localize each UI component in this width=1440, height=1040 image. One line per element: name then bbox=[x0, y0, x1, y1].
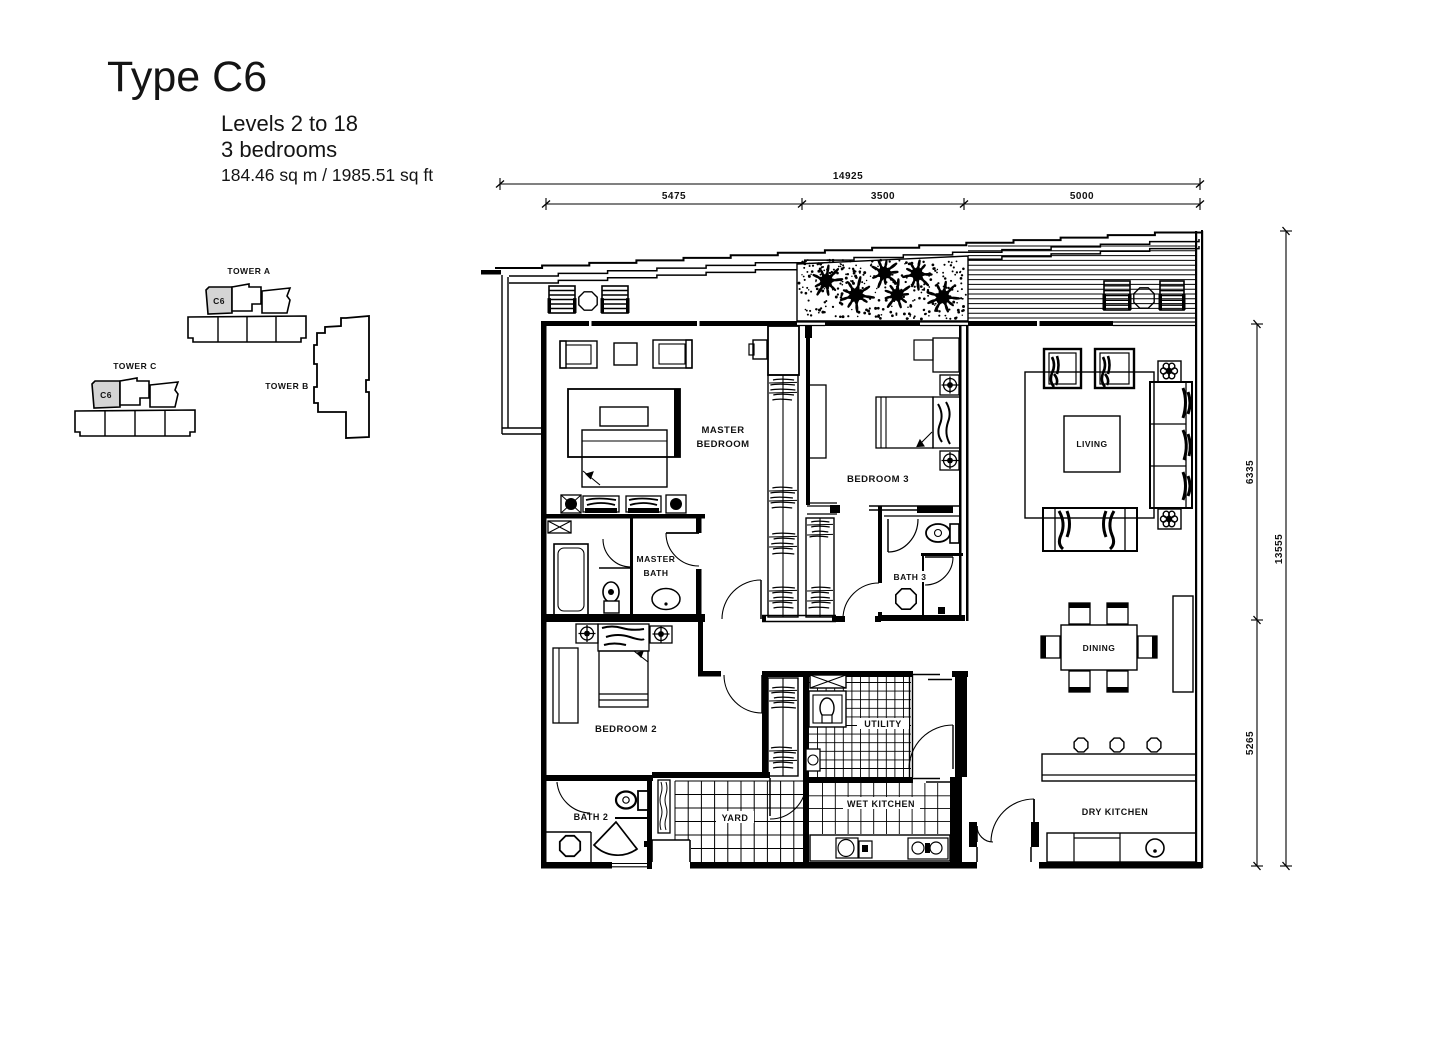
svg-text:DINING: DINING bbox=[1083, 643, 1116, 653]
svg-text:LIVING: LIVING bbox=[1076, 439, 1107, 449]
svg-text:MASTER: MASTER bbox=[701, 425, 744, 436]
svg-text:WET KITCHEN: WET KITCHEN bbox=[847, 799, 915, 809]
svg-text:5265: 5265 bbox=[1245, 731, 1256, 755]
svg-text:BEDROOM 2: BEDROOM 2 bbox=[595, 724, 657, 735]
svg-text:6335: 6335 bbox=[1245, 460, 1256, 484]
svg-text:Levels 2 to 18: Levels 2 to 18 bbox=[221, 111, 358, 136]
svg-text:BEDROOM: BEDROOM bbox=[696, 439, 749, 450]
svg-text:13555: 13555 bbox=[1274, 534, 1285, 564]
svg-text:Type C6: Type C6 bbox=[107, 53, 267, 101]
svg-text:MASTER: MASTER bbox=[637, 554, 676, 564]
svg-text:3 bedrooms: 3 bedrooms bbox=[221, 137, 337, 162]
svg-text:BATH 3: BATH 3 bbox=[893, 572, 926, 582]
svg-text:TOWER C: TOWER C bbox=[113, 361, 156, 371]
svg-text:DRY KITCHEN: DRY KITCHEN bbox=[1082, 807, 1149, 817]
svg-text:5475: 5475 bbox=[662, 191, 686, 202]
svg-text:5000: 5000 bbox=[1070, 191, 1094, 202]
svg-text:TOWER B: TOWER B bbox=[265, 381, 308, 391]
svg-text:BEDROOM 3: BEDROOM 3 bbox=[847, 474, 909, 485]
svg-text:C6: C6 bbox=[213, 296, 225, 306]
svg-text:YARD: YARD bbox=[722, 813, 749, 823]
svg-text:C6: C6 bbox=[100, 390, 112, 400]
svg-text:3500: 3500 bbox=[871, 191, 895, 202]
svg-text:184.46 sq m / 1985.51 sq ft: 184.46 sq m / 1985.51 sq ft bbox=[221, 165, 433, 185]
svg-text:BATH: BATH bbox=[644, 568, 669, 578]
svg-text:TOWER A: TOWER A bbox=[227, 266, 270, 276]
svg-text:BATH 2: BATH 2 bbox=[574, 812, 609, 822]
svg-text:UTILITY: UTILITY bbox=[864, 719, 902, 729]
svg-text:14925: 14925 bbox=[833, 171, 863, 182]
